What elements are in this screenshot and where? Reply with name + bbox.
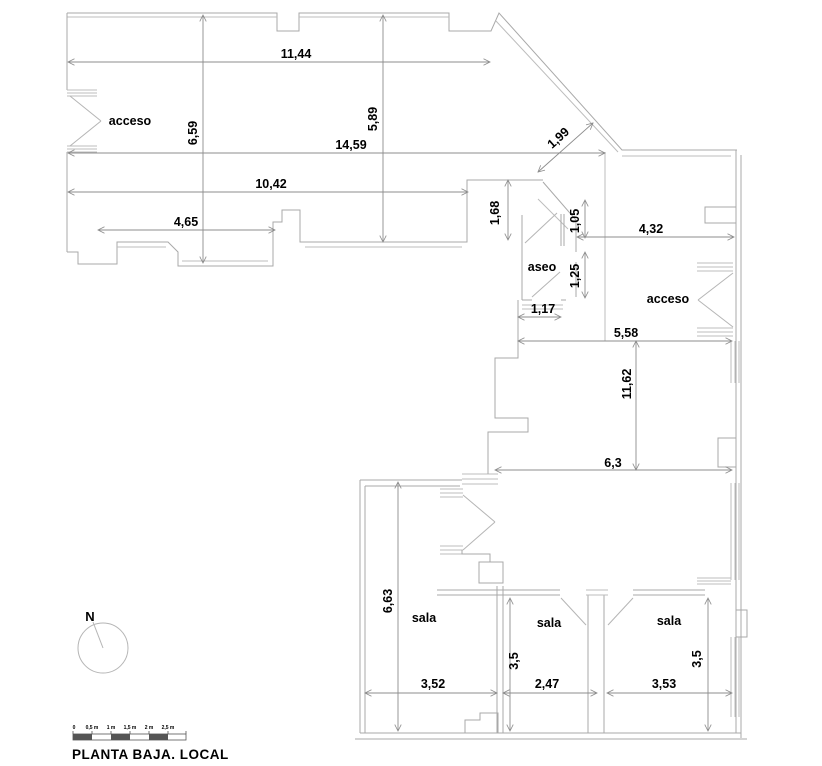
dim-label: 5,89 (366, 107, 380, 131)
wall-column-stub (462, 550, 490, 562)
scale-bar-seg-1 (73, 734, 92, 740)
scale-bar-seg-3 (149, 734, 168, 740)
windows (697, 263, 739, 717)
wall-band-bottom (67, 180, 543, 266)
wall-band-bottom-inner (117, 247, 462, 261)
walls (67, 13, 747, 739)
dim-label: 4,32 (639, 222, 663, 236)
wall-right-pilaster (705, 207, 736, 223)
dim-label: 5,58 (614, 326, 638, 340)
window-right-2 (731, 483, 739, 580)
wall-bottomsec-top (360, 480, 462, 486)
acceso-right-door-leaves (698, 273, 733, 327)
dim-label: 4,65 (174, 215, 198, 229)
room-label-aseo: aseo (528, 260, 557, 274)
dim-label: 14,59 (335, 138, 366, 152)
window-right-3 (731, 637, 739, 717)
dim-label: 1,05 (568, 209, 582, 233)
aseo-door-swing-lower (532, 272, 560, 297)
room-label-sala-3: sala (657, 614, 682, 628)
lobby-walls (588, 595, 604, 733)
dimension-labels: 11,44 6,59 14,59 5,89 1,99 10,42 4,65 1,… (174, 47, 704, 691)
lobby-threshold (586, 590, 608, 595)
sala1-door-thresholds (440, 489, 463, 554)
entrance-left-door-leaves (70, 96, 101, 146)
north-arrow: N (78, 609, 128, 673)
scale-bar-ticks (73, 731, 186, 734)
room-label-sala-1: sala (412, 611, 437, 625)
north-needle (93, 622, 103, 648)
sala1-door-leaves (463, 495, 495, 550)
dimension-lines (68, 15, 734, 731)
column (479, 562, 503, 583)
floor-plan-page: 11,44 6,59 14,59 5,89 1,99 10,42 4,65 1,… (0, 0, 822, 766)
dim-label: 1,25 (568, 264, 582, 288)
scale-tick-0: 0 (73, 725, 76, 731)
wall-right-notch (718, 438, 736, 467)
scale-tick-1-5: 1,5 m (124, 725, 137, 731)
wall-bottom-step (465, 713, 498, 733)
dim-label: 6,63 (381, 589, 395, 613)
room-label-acceso-right: acceso (647, 292, 690, 306)
room-labels: acceso aseo acceso sala sala sala (109, 114, 690, 630)
dim-label: 3,53 (652, 677, 676, 691)
wall-bottom (355, 733, 747, 739)
dim-label: 11,62 (620, 369, 634, 400)
dim-label: 3,5 (507, 652, 521, 669)
sala2-door-swing (561, 598, 586, 625)
dim-label: 11,44 (281, 47, 312, 61)
sala3-door-swing (608, 598, 633, 625)
scale-bar-seg-2 (111, 734, 130, 740)
room-label-acceso-left: acceso (109, 114, 152, 128)
wall-aseo-door-leaf (561, 214, 564, 246)
dim-label: 3,5 (690, 650, 704, 667)
dim-label: 6,3 (604, 456, 621, 470)
wall-outline-top-inner (67, 17, 731, 156)
aseo-door-swing-upper (525, 213, 557, 243)
threshold-right-lower (697, 578, 731, 584)
acceso-right-thresholds (697, 263, 733, 336)
window-right-1 (731, 341, 739, 383)
scale-bar: 0 0,5 m 1 m 1,5 m 2 m 2,5 m (73, 725, 186, 740)
room-label-sala-2: sala (537, 616, 562, 630)
wall-sala3-top (633, 590, 705, 595)
dim-label: 1,17 (531, 302, 555, 316)
wall-step-edge (488, 300, 528, 474)
partition-sala1-sala2 (497, 586, 503, 733)
threshold-bottomsec-topleft (462, 474, 498, 484)
plan-title: PLANTA BAJA. LOCAL (72, 747, 229, 762)
wall-sala2-top (437, 590, 560, 595)
scale-tick-1: 1 m (107, 725, 116, 731)
floor-plan-drawing: 11,44 6,59 14,59 5,89 1,99 10,42 4,65 1,… (0, 0, 822, 766)
north-label: N (85, 609, 94, 624)
wall-outline-top (67, 13, 737, 150)
dim-label: 1,68 (488, 201, 502, 225)
dim-label: 10,42 (255, 177, 286, 191)
dim-label: 3,52 (421, 677, 445, 691)
wall-bottomsec-left (360, 480, 365, 733)
scale-tick-0-5: 0,5 m (86, 725, 99, 731)
dim-label: 2,47 (535, 677, 559, 691)
scale-tick-2: 2 m (145, 725, 154, 731)
dim-label: 6,59 (186, 121, 200, 145)
scale-tick-2-5: 2,5 m (162, 725, 175, 731)
dim-label: 1,99 (545, 125, 572, 152)
entrance-left-thresholds (67, 90, 97, 152)
